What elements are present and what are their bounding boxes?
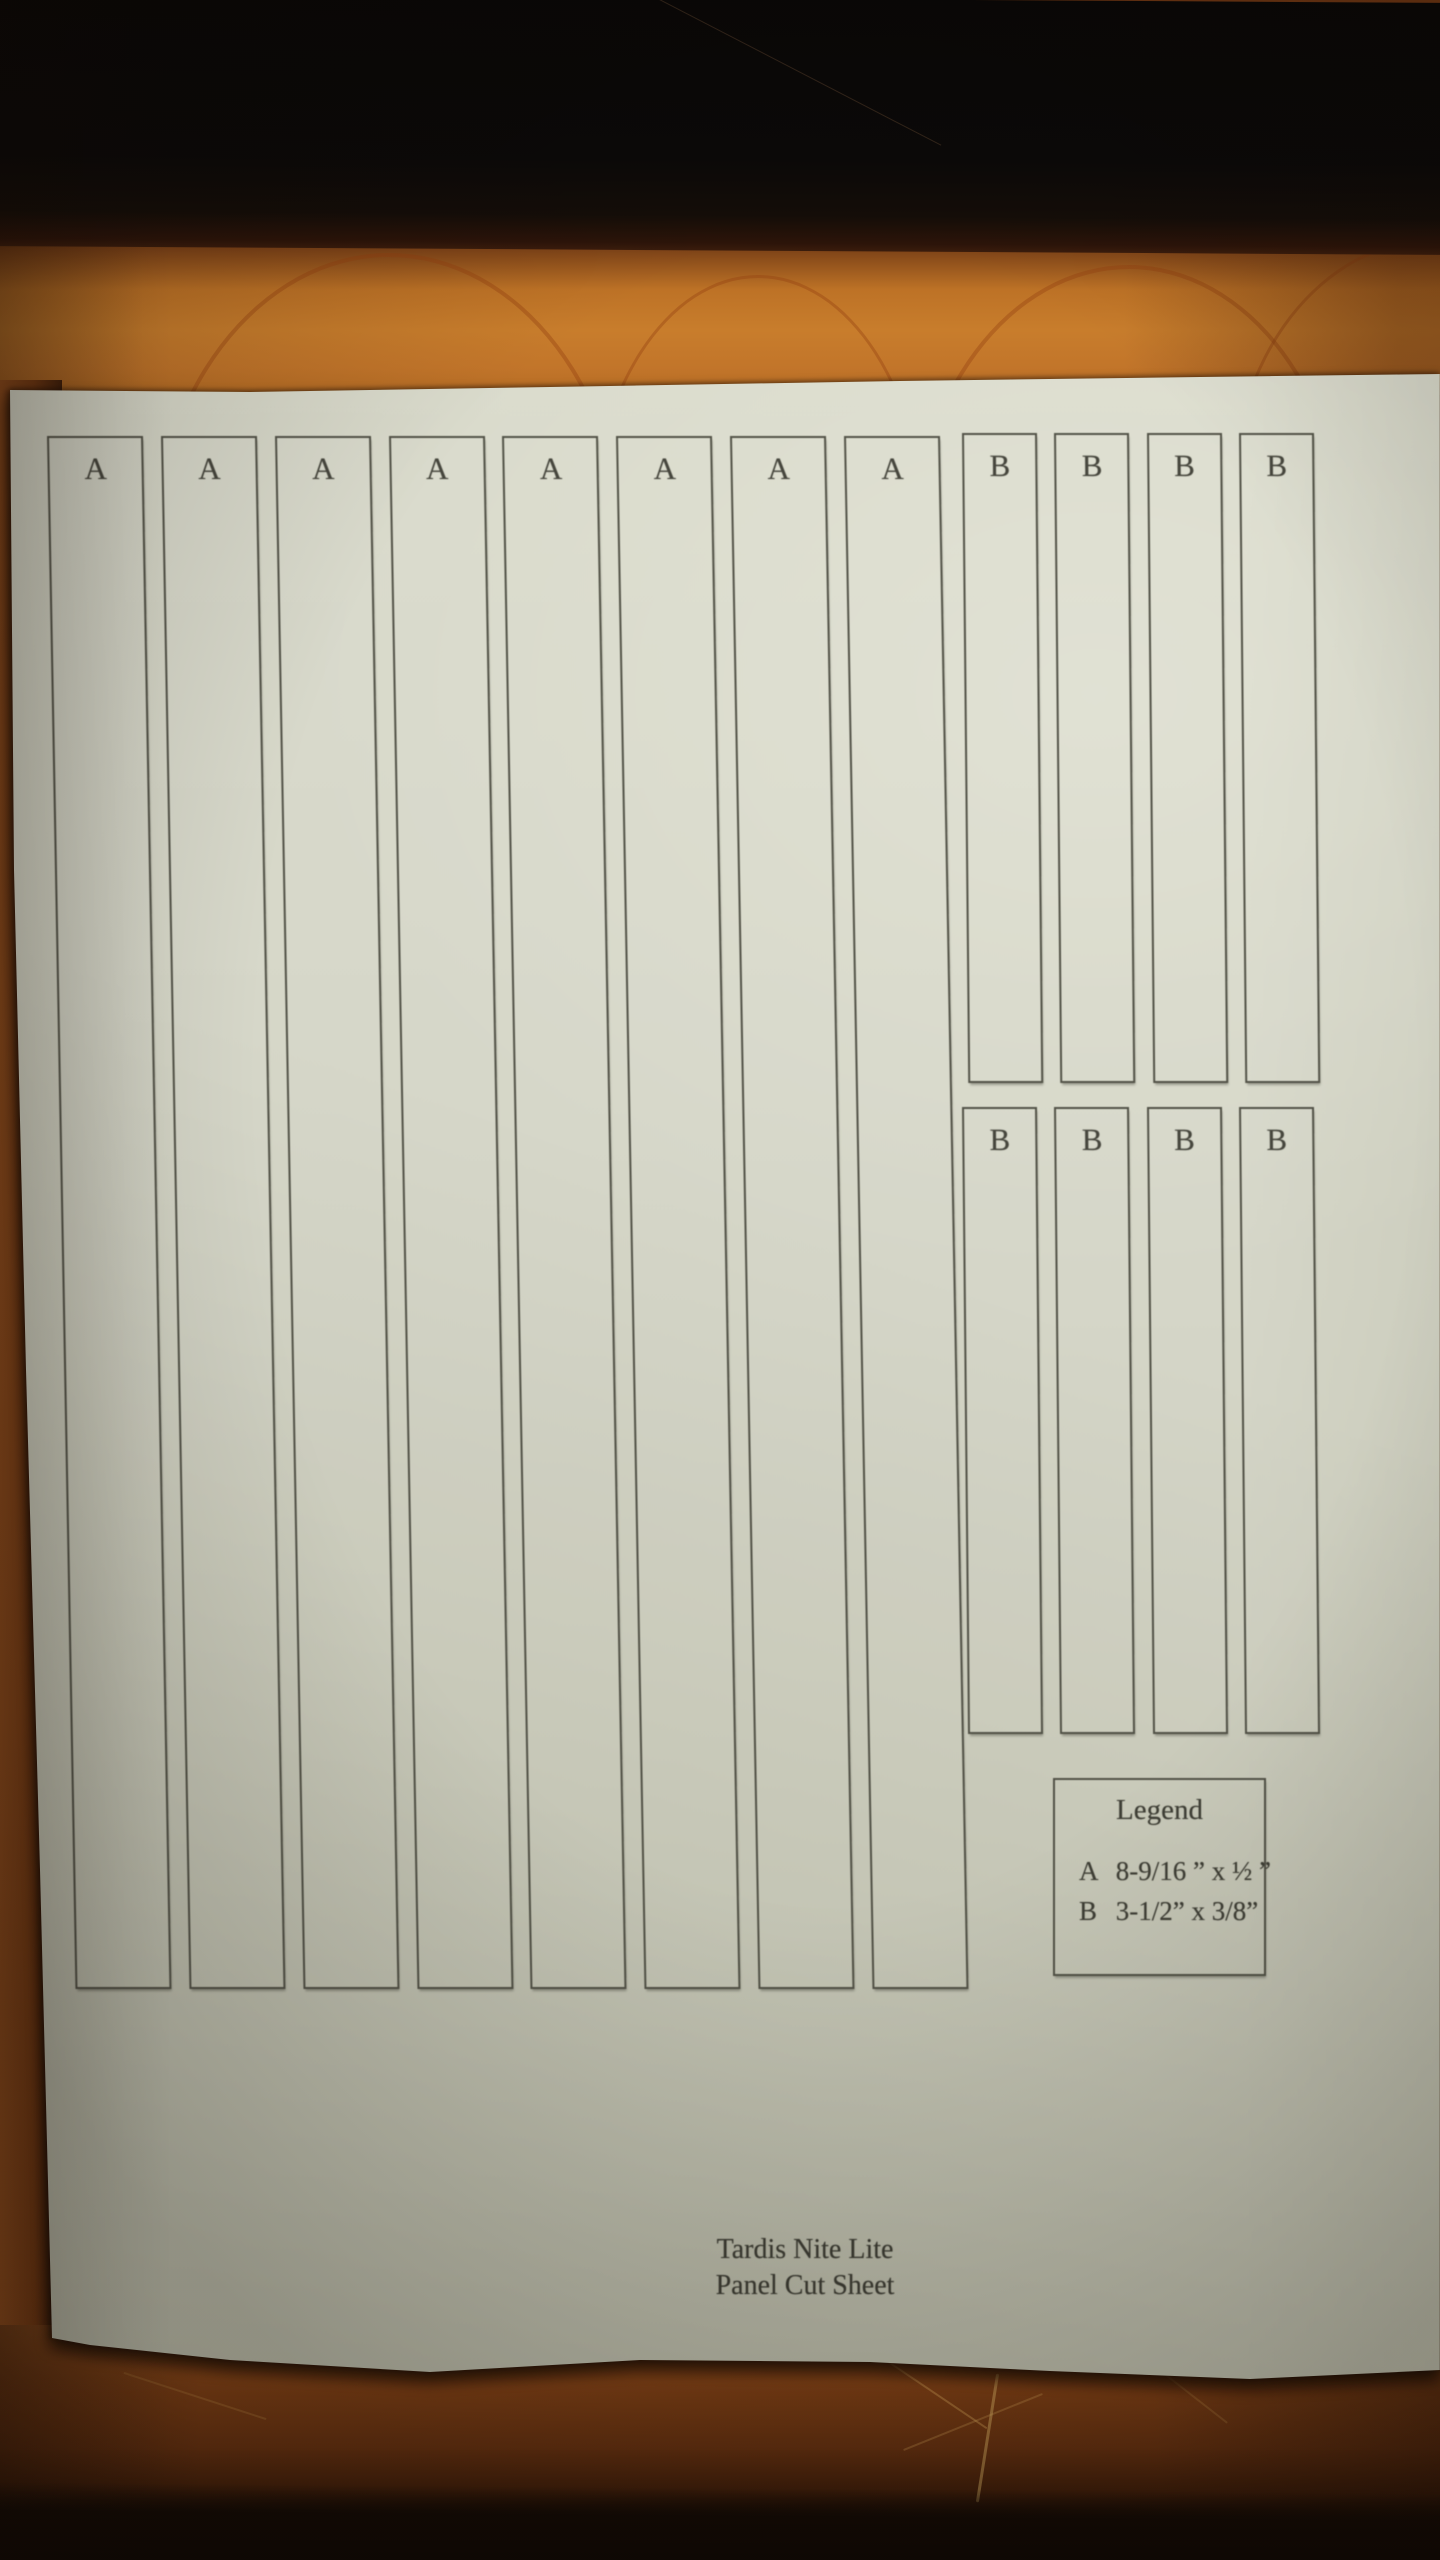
wood-grain-arc	[910, 265, 1348, 395]
legend-key: B	[1079, 1891, 1109, 1931]
legend-entry-b: B 3-1/2” x 3/8”	[1079, 1891, 1264, 1931]
panel-label: B	[1056, 448, 1127, 484]
panel-label: B	[964, 448, 1035, 484]
cut-panel-b: B	[1147, 433, 1228, 1083]
panel-label: B	[1241, 1122, 1312, 1158]
cut-panel-b: B	[962, 433, 1043, 1083]
panel-label: A	[732, 451, 825, 487]
paper-sheet: A A A A A	[0, 370, 1440, 2400]
cut-panel-a: A	[502, 436, 626, 1989]
panel-label: A	[391, 451, 484, 487]
panel-row-b-top: B B B B	[962, 433, 1320, 1083]
panel-label: A	[846, 451, 939, 487]
wood-grain-arc	[1230, 239, 1440, 395]
panel-label: A	[505, 451, 598, 487]
legend-title: Legend	[1055, 1794, 1264, 1827]
cut-panel-b: B	[1239, 433, 1320, 1083]
cut-panel-a: A	[161, 436, 285, 1989]
panel-row-a: A A A A A	[47, 436, 968, 1989]
shelf-scratch	[648, 0, 942, 146]
sheet-title-block: Tardis Nite Lite Panel Cut Sheet	[590, 2232, 1020, 2304]
legend-size: 8-9/16 ” x ½ ”	[1116, 1856, 1271, 1886]
panel-label: A	[49, 451, 142, 487]
desk-scratch	[123, 2372, 266, 2420]
cut-panel-b: B	[1054, 1107, 1135, 1734]
desk-scratch	[903, 2393, 1043, 2451]
wood-grain-arc	[590, 275, 926, 395]
panel-label: A	[163, 451, 256, 487]
legend-size: 3-1/2” x 3/8”	[1116, 1896, 1258, 1926]
panel-label: B	[1056, 1122, 1127, 1158]
panel-label: A	[618, 451, 711, 487]
panel-label: B	[1149, 1122, 1220, 1158]
cut-panel-a: A	[275, 436, 399, 1989]
cut-panel-b: B	[1147, 1107, 1228, 1734]
legend-key: A	[1079, 1851, 1109, 1891]
cut-panel-a: A	[389, 436, 513, 1989]
desk-scratch	[976, 2374, 999, 2503]
cut-panel-b: B	[1239, 1107, 1320, 1734]
legend-entry-a: A 8-9/16 ” x ½ ”	[1079, 1851, 1264, 1891]
cut-panel-a: A	[730, 436, 854, 1989]
wood-grain-arc	[150, 253, 628, 395]
desk-photo-scene: A A A A A	[0, 0, 1440, 2560]
sheet-title-line2: Panel Cut Sheet	[590, 2268, 1020, 2304]
panel-label: A	[277, 451, 370, 487]
cut-panel-b: B	[1054, 433, 1135, 1083]
legend-entries: A 8-9/16 ” x ½ ” B 3-1/2” x 3/8”	[1079, 1851, 1264, 1931]
cut-panel-a: A	[844, 436, 968, 1989]
legend-box: Legend A 8-9/16 ” x ½ ” B 3-1/2” x 3/8”	[1053, 1778, 1266, 1976]
table-front-edge-shadow	[0, 2482, 1440, 2560]
panel-label: B	[964, 1122, 1035, 1158]
cut-panel-a: A	[47, 436, 171, 1989]
panel-label: B	[1241, 448, 1312, 484]
dark-shelf-edge-top	[0, 0, 1440, 255]
panel-row-b-bottom: B B B B	[962, 1107, 1320, 1734]
sheet-title-line1: Tardis Nite Lite	[590, 2232, 1020, 2268]
cut-panel-a: A	[616, 436, 740, 1989]
cut-panel-b: B	[962, 1107, 1043, 1734]
panel-label: B	[1149, 448, 1220, 484]
